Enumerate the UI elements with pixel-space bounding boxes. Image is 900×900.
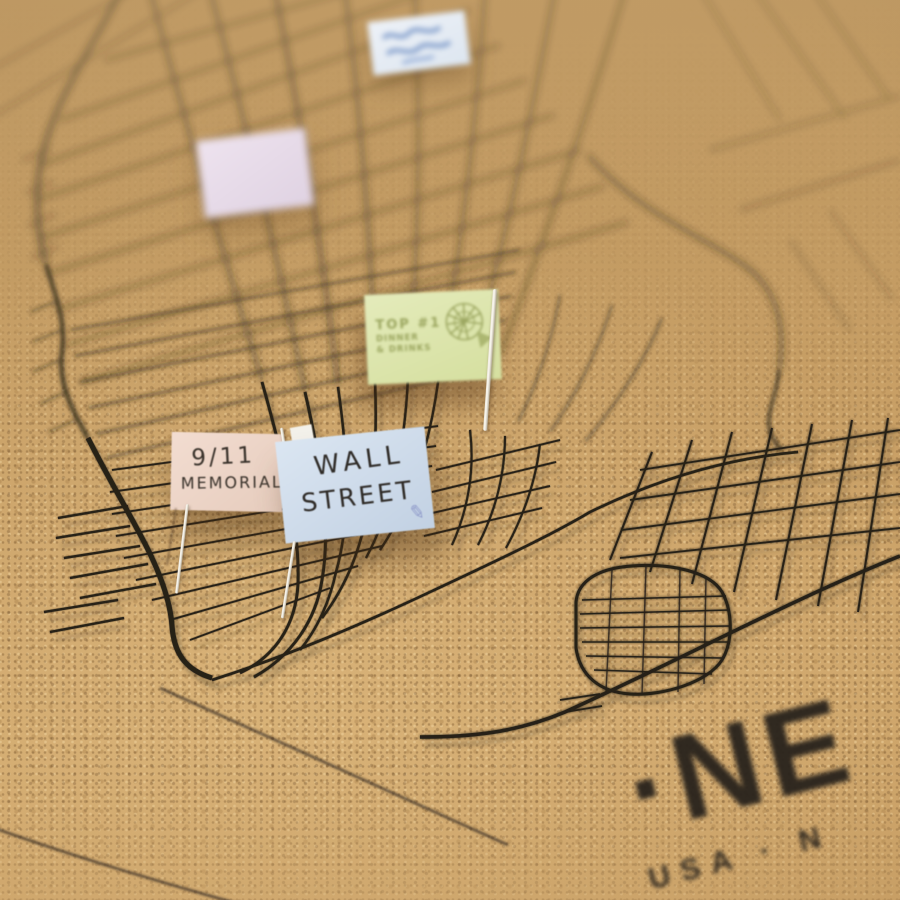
green-flag-text: TOP #1 DINNER & DRINKS <box>375 316 442 356</box>
pink-flag-line1: 9/11 <box>191 441 284 471</box>
photo-cork-map-board: ·NE USA · N TOP #1 DINNER & DRINKS 9/11 <box>0 0 900 900</box>
green-flag-line1: TOP #1 <box>375 316 442 335</box>
pink-flag-line2: MEMORIAL <box>181 472 283 492</box>
map-water-lines <box>0 688 508 900</box>
green-flag-line3: & DRINKS <box>376 342 442 355</box>
flag-note-blue: WALL STREET ✎ <box>275 426 435 543</box>
flag-note-blank <box>196 128 315 219</box>
flag-note-green: TOP #1 DINNER & DRINKS <box>364 289 502 385</box>
pencil-icon: ✎ <box>408 501 426 525</box>
flag-note-pink: 9/11 MEMORIAL <box>170 432 284 512</box>
